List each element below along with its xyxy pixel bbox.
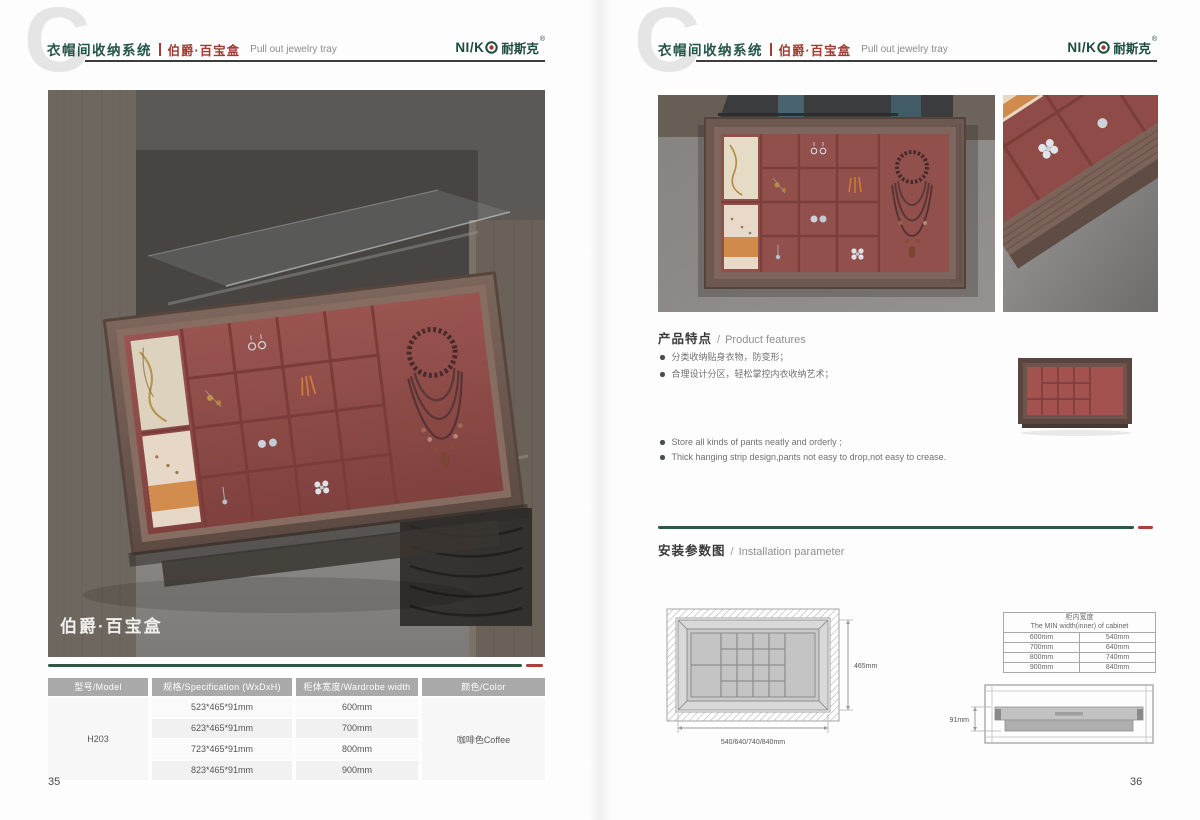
catalog-spread: C 衣帽间收纳系统 伯爵·百宝盒 Pull out jewelry tray N… [0,0,1200,820]
table-row: 600mm 540mm [1004,633,1156,643]
header-divider [770,43,772,56]
cabinet-table-title-cn: 柜内宽度 [1004,614,1155,623]
features-section-title: 产品特点 / Product features [658,328,806,347]
jewelry-tray-detail-photo [1003,95,1158,312]
installation-title-separator: / [731,546,734,558]
header-product-name: 伯爵·百宝盒 [779,40,852,59]
spec-value: 623*465*91mm [152,719,292,738]
width-value: 800mm [296,740,418,759]
cabinet-table-title-en: The MIN width(inner) of cabinet [1004,623,1155,632]
page-gutter [588,0,612,820]
header-system-title: 衣帽间收纳系统 [658,39,763,59]
section-rule-red [1138,526,1153,529]
section-rule-green [48,664,522,667]
feature-text: 分类收纳贴身衣物，防变形； [672,352,789,363]
model-cell: H203 [48,698,148,780]
nisko-logo: NI/K 耐斯克 ® [1067,38,1157,57]
header-product-name-en: Pull out jewelry tray [250,44,337,55]
wardrobe-jewelry-tray-photo [48,90,545,657]
table-row: 700mm 640mm [1004,643,1156,653]
nisko-logo: NI/K 耐斯克 ® [455,38,545,57]
spec-col-color: 颜色/Color [422,678,545,696]
bullet-dot-icon [660,440,665,445]
spec-col-wardrobe-width: 柜体宽度/Wardrobe width [296,678,418,696]
page-header-right: 衣帽间收纳系统 伯爵·百宝盒 Pull out jewelry tray [658,39,948,59]
table-row: 900mm 840mm [1004,663,1156,673]
spec-table-header-row: 型号/Model 规格/Specification (WxDxH) 柜体宽度/W… [48,678,545,696]
bullet-dot-icon [660,372,665,377]
dimension-height-label: 91mm [950,717,970,724]
feature-text: 合理设计分区，轻松掌控内衣收纳艺术； [672,369,834,380]
cabinet-width-value: 900mm [1004,663,1080,673]
spec-value: 723*465*91mm [152,740,292,759]
logo-o-icon [1097,41,1110,54]
page-number-right: 36 [1130,776,1142,788]
header-rule [696,60,1157,62]
table-row: 800mm 740mm [1004,653,1156,663]
page-header-left: 衣帽间收纳系统 伯爵·百宝盒 Pull out jewelry tray [47,39,337,59]
header-divider [159,43,161,56]
dimension-depth-label: 465mm [854,663,878,670]
feature-text: Store all kinds of pants neatly and orde… [672,437,842,448]
feature-text: Thick hanging strip design,pants not eas… [672,452,947,463]
cabinet-width-value: 800mm [1004,653,1080,663]
installation-title-cn: 安装参数图 [658,540,726,559]
section-rule-green [658,526,1134,529]
inner-width-value: 540mm [1080,633,1156,643]
features-title-en: Product features [725,334,806,346]
inner-width-value: 640mm [1080,643,1156,653]
spec-col-model: 型号/Model [48,678,148,696]
feature-bullet: Thick hanging strip design,pants not eas… [660,452,1020,463]
feature-bullet: 分类收纳贴身衣物，防变形； [660,352,1020,363]
features-title-cn: 产品特点 [658,328,712,347]
logo-registered-mark: ® [1152,36,1157,43]
width-value: 600mm [296,698,418,717]
feature-bullet: 合理设计分区，轻松掌控内衣收纳艺术； [660,369,1020,380]
cabinet-width-table: 柜内宽度 The MIN width(inner) of cabinet 600… [1003,612,1156,673]
product-render-thumbnail [1016,356,1136,438]
header-rule [85,60,545,62]
width-value: 700mm [296,719,418,738]
header-product-name-en: Pull out jewelry tray [861,44,948,55]
header-product-name: 伯爵·百宝盒 [168,40,241,59]
logo-registered-mark: ® [540,36,545,43]
installation-side-view-diagram: 91mm [945,683,1160,748]
inner-width-value: 840mm [1080,663,1156,673]
section-rule-red [526,664,543,667]
logo-cn-text: 耐斯克 [1113,38,1151,57]
width-value: 900mm [296,761,418,780]
inner-width-value: 740mm [1080,653,1156,663]
cabinet-table-header: 柜内宽度 The MIN width(inner) of cabinet [1004,613,1156,633]
feature-bullet: Store all kinds of pants neatly and orde… [660,437,1020,448]
installation-top-view-diagram: 465mm 540/640/740/840mm [663,605,878,750]
logo-o-icon [485,41,498,54]
features-title-separator: / [717,334,720,346]
photo-product-label: 伯爵·百宝盒 [60,612,163,637]
bullet-dot-icon [660,355,665,360]
jewelry-tray-top-view-photo [658,95,995,312]
cabinet-width-value: 700mm [1004,643,1080,653]
bullet-dot-icon [660,455,665,460]
specification-table: 型号/Model 规格/Specification (WxDxH) 柜体宽度/W… [48,678,545,780]
page-number-left: 35 [48,776,60,788]
header-system-title: 衣帽间收纳系统 [47,39,152,59]
spec-col-specification: 规格/Specification (WxDxH) [152,678,292,696]
color-cell: 咖啡色Coffee [422,698,545,780]
logo-latin-text: NI/K [455,40,484,55]
spec-value: 823*465*91mm [152,761,292,780]
installation-title-en: Installation parameter [739,546,845,558]
installation-section-title: 安装参数图 / Installation parameter [658,540,844,559]
logo-latin-text: NI/K [1067,40,1096,55]
logo-cn-text: 耐斯克 [501,38,539,57]
spec-table-body: H203 523*465*91mm 600mm 咖啡色Coffee 623*46… [48,698,545,780]
dimension-width-label: 540/640/740/840mm [721,739,785,746]
cabinet-width-value: 600mm [1004,633,1080,643]
spec-value: 523*465*91mm [152,698,292,717]
